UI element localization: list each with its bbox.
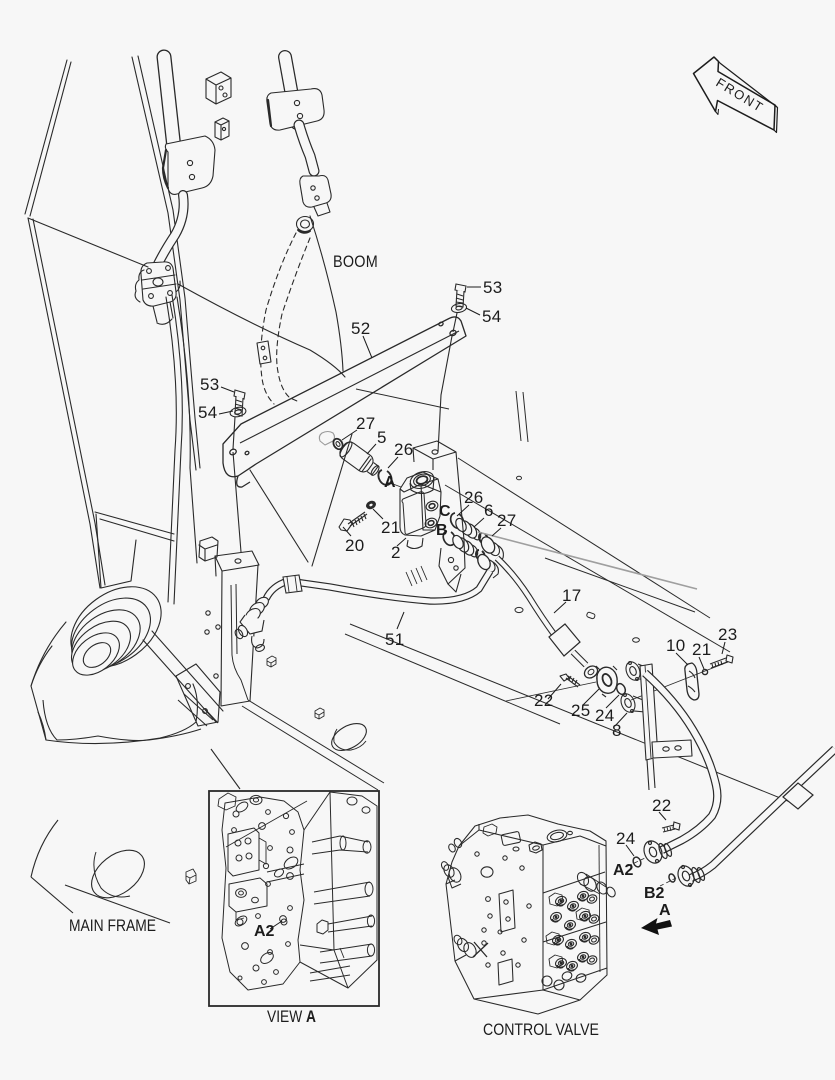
- svg-text:6: 6: [484, 501, 494, 520]
- svg-text:20: 20: [345, 536, 365, 555]
- svg-text:54: 54: [482, 307, 502, 326]
- svg-text:A2: A2: [254, 923, 275, 940]
- svg-text:CONTROL VALVE: CONTROL VALVE: [483, 1021, 599, 1039]
- svg-text:21: 21: [692, 640, 712, 659]
- svg-text:54: 54: [198, 403, 218, 422]
- svg-text:A2: A2: [613, 862, 634, 879]
- svg-text:25: 25: [571, 701, 591, 720]
- svg-text:26: 26: [394, 440, 414, 459]
- svg-text:22: 22: [652, 796, 672, 815]
- svg-text:B2: B2: [644, 885, 665, 902]
- svg-text:VIEW A: VIEW A: [267, 1008, 316, 1026]
- svg-text:MAIN FRAME: MAIN FRAME: [69, 917, 156, 935]
- svg-text:B: B: [436, 522, 448, 539]
- svg-text:26: 26: [464, 488, 484, 507]
- svg-text:A: A: [384, 474, 396, 491]
- svg-text:17: 17: [562, 586, 582, 605]
- svg-text:5: 5: [377, 428, 387, 447]
- svg-text:24: 24: [616, 829, 636, 848]
- svg-text:C: C: [439, 503, 451, 520]
- svg-text:23: 23: [718, 625, 738, 644]
- svg-text:10: 10: [666, 636, 686, 655]
- svg-text:22: 22: [534, 691, 554, 710]
- svg-text:27: 27: [356, 414, 376, 433]
- svg-text:53: 53: [483, 278, 503, 297]
- svg-text:BOOM: BOOM: [333, 252, 378, 271]
- svg-text:2: 2: [391, 543, 401, 562]
- svg-text:A: A: [659, 902, 671, 919]
- svg-text:51: 51: [385, 630, 405, 649]
- svg-text:52: 52: [351, 319, 371, 338]
- svg-text:8: 8: [612, 721, 622, 740]
- svg-text:21: 21: [381, 518, 401, 537]
- svg-text:27: 27: [497, 511, 517, 530]
- svg-text:53: 53: [200, 375, 220, 394]
